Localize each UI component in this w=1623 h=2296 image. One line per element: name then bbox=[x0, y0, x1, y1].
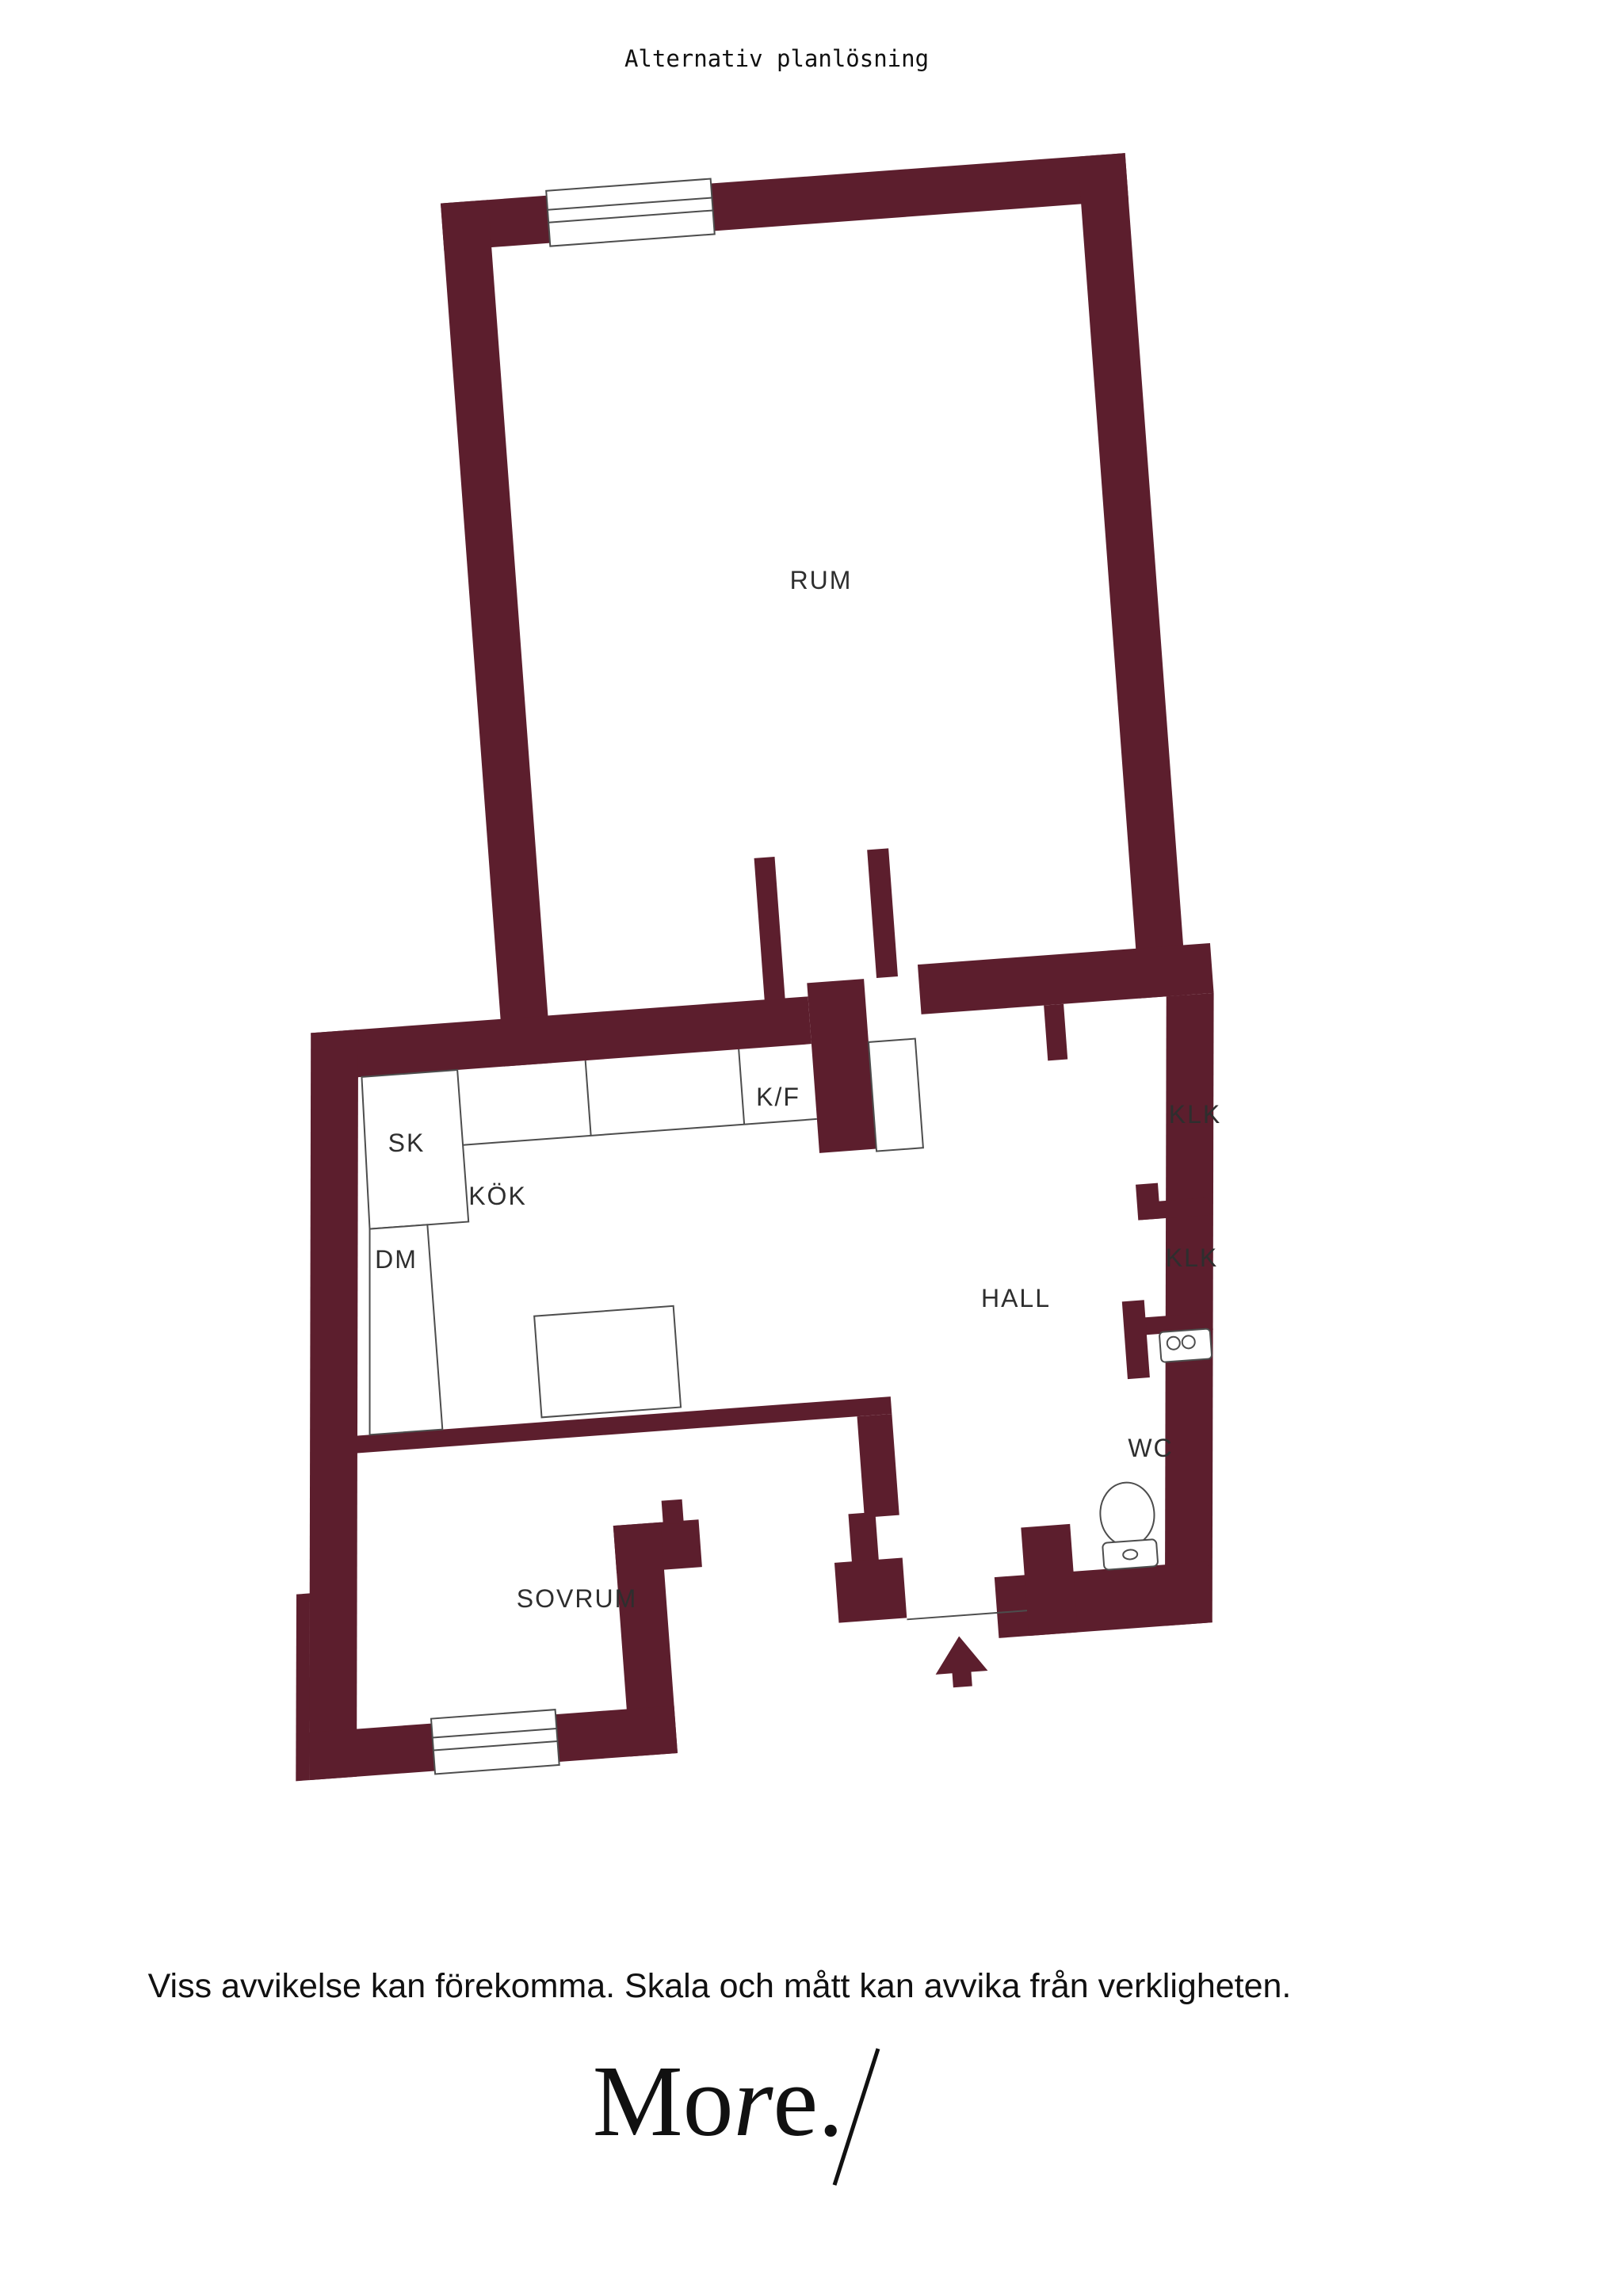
floor-plan-rotated-group bbox=[181, 147, 1266, 1785]
wall-rum-west bbox=[441, 200, 552, 1066]
kitchen-island-outline bbox=[534, 1306, 681, 1418]
wall-klk-divider-jamb bbox=[1136, 1183, 1160, 1221]
wall-rum-pilaster-east bbox=[867, 848, 898, 978]
fridge-bay-divider-line bbox=[739, 1049, 744, 1125]
room-label-klk-upper: KLK bbox=[1169, 1100, 1221, 1129]
kitchen-counter-divider-line bbox=[586, 1060, 591, 1136]
room-label-hall: HALL bbox=[981, 1284, 1051, 1312]
wall-sovrum-door-jamb bbox=[662, 1499, 684, 1525]
logo-part-mo: Mo bbox=[593, 2045, 734, 2157]
wall-rum-top-east bbox=[711, 153, 1128, 231]
wall-kok-north bbox=[311, 996, 811, 1080]
walls-group bbox=[181, 151, 1266, 1782]
window-symbol-sovrum bbox=[431, 1710, 559, 1774]
logo-part-e: e. bbox=[773, 2045, 843, 2157]
wall-hall-west bbox=[857, 1414, 899, 1518]
room-label-rum: RUM bbox=[790, 566, 853, 594]
rum-doorway-reveal bbox=[869, 1039, 923, 1152]
wall-sovrum-south-west bbox=[306, 1724, 435, 1780]
room-label-dm: DM bbox=[375, 1245, 418, 1274]
page-title: Alternativ planlösning bbox=[624, 45, 929, 72]
wall-sovrum-south-east bbox=[556, 1706, 678, 1762]
wall-wc-door-jamb bbox=[1122, 1300, 1150, 1379]
room-label-wc: WC bbox=[1128, 1434, 1173, 1462]
wall-entrance-west-block bbox=[834, 1558, 907, 1623]
room-label-sk: SK bbox=[388, 1129, 426, 1157]
wall-klk-upper-door-jamb bbox=[1044, 1004, 1067, 1061]
disclaimer-text: Viss avvikelse kan förekomma. Skala och … bbox=[148, 1967, 1292, 2005]
wall-kf-jamb bbox=[807, 979, 876, 1153]
logo-text: More. bbox=[593, 2045, 843, 2157]
room-label-kok: KÖK bbox=[468, 1182, 527, 1210]
logo: More. bbox=[593, 2045, 878, 2185]
room-label-kf: K/F bbox=[756, 1083, 800, 1111]
entrance-arrow-icon bbox=[933, 1634, 989, 1689]
wall-wc-west-stub bbox=[1021, 1524, 1078, 1636]
wall-rum-east bbox=[1078, 153, 1187, 999]
kitchen-counter-front-line bbox=[463, 1119, 817, 1145]
wall-rum-pilaster-west bbox=[754, 857, 785, 1000]
floor-plan-page: Alternativ planlösning RUM SK K/F KÖK DM… bbox=[0, 0, 1623, 2296]
room-label-klk-lower: KLK bbox=[1166, 1244, 1218, 1272]
sink-icon bbox=[1159, 1328, 1212, 1362]
window-symbol-rum bbox=[546, 179, 715, 246]
floor-plan-svg: Alternativ planlösning RUM SK K/F KÖK DM… bbox=[0, 0, 1623, 2296]
toilet-icon bbox=[1098, 1480, 1159, 1570]
logo-part-r: r bbox=[734, 2045, 774, 2157]
room-label-sovrum: SOVRUM bbox=[517, 1584, 637, 1613]
wall-entrance-west-jamb bbox=[848, 1512, 878, 1563]
